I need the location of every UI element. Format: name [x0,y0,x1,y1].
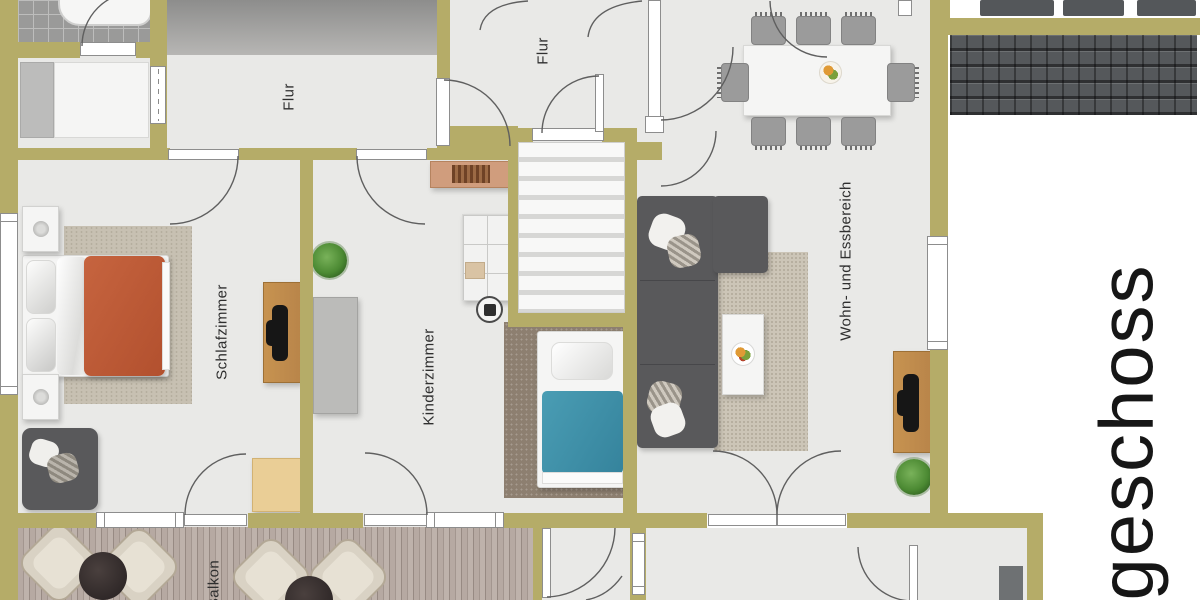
floor-title: geschoss [1084,263,1171,600]
wall-top-right-h [937,18,1200,35]
bed-blanket-orange [84,256,165,376]
cabinet [999,566,1023,600]
fruit-plate [731,342,755,366]
dining-chair [751,16,786,45]
room-label-schlafzimmer: Schlafzimmer [214,284,231,380]
door-bathroom [80,42,136,56]
bed-footboard [162,262,170,370]
kids-bed-footboard [542,472,623,484]
dresser [252,458,301,512]
floor-bottom-rooms [533,528,1043,600]
guest-bed [54,62,149,138]
wall-stair-top-b [602,128,637,142]
door-stairs [532,128,604,141]
wardrobe [313,297,358,414]
dining-chair [841,117,876,146]
plant [896,459,932,495]
dining-chair [796,16,831,45]
dining-table [743,45,891,116]
plant [312,243,347,278]
french-door-right [777,514,846,526]
bed-duvet-fold [57,257,87,375]
dining-chair [841,16,876,45]
shelf [462,214,511,301]
wall-bottom-c [503,513,707,528]
wall-hall-bottom-a [18,148,170,160]
roof-tiles [950,35,1197,115]
shelf-box [465,262,485,279]
dining-chair [887,63,915,102]
window-schlafzimmer-balcony [96,512,184,528]
bathtub [58,0,152,26]
bed-pillow [26,318,56,372]
open-void-area [167,0,437,55]
glass-partition [648,0,661,131]
room-label-wohn-essbereich: Wohn- und Essbereich [838,181,855,340]
window-kinderzimmer-balcony [426,512,504,528]
door-roomA-leaf [542,528,551,598]
sofa-seam [640,364,715,365]
office-chair [903,374,919,432]
wall-bath-bottom-a [18,42,80,58]
robot-vacuum-top [484,304,496,316]
balcony-side-table [79,552,127,600]
wall-bedroom-divider [300,158,313,515]
nightstand [22,374,59,420]
door-stairs-leaf [595,74,604,132]
fruit-bowl [819,61,842,84]
guest-bed-headboard [20,62,54,138]
wall-bottom-right-v [1027,528,1043,600]
dining-chair [796,117,831,146]
door-schlafzimmer-balcony [184,514,247,526]
room-label-flur-center: Flur [535,37,552,64]
door-roomB-leaf [909,545,918,600]
sofa-seam [640,280,715,281]
office-chair [272,305,288,361]
wall-stair-bottom [508,313,637,327]
roof-window [1137,0,1196,16]
room-label-balkon: Balkon [206,560,223,600]
wall-roomA-left [533,528,542,600]
wall-top-right-v [937,0,950,18]
wall-stair-top-a [508,128,533,142]
staircase [518,142,625,313]
floor-plan: Flur Flur Schlafzimmer Kinderzimmer Wohn… [0,0,1200,600]
window-dining-top [898,0,912,16]
window-hall-dashed [150,66,166,124]
wall-hall-bottom-b [239,148,357,160]
bed-pillow [26,260,56,314]
room-label-kinderzimmer: Kinderzimmer [421,328,438,425]
roof-window [980,0,1054,16]
dining-chair [751,117,786,146]
kids-bed-pillow [551,342,613,380]
glass-partition-handle [645,116,664,133]
window-roomAB [632,533,645,595]
door-hall-connector [436,78,450,146]
sideboard-slats [452,165,490,183]
wall-kinder-living-divider [623,327,637,517]
window-left-wall [0,213,18,395]
kids-bed-blanket [542,391,623,474]
nightstand [22,206,59,252]
door-kinderzimmer-balcony [364,514,428,526]
wall-stair-left [508,128,518,327]
room-label-flur-left: Flur [281,83,298,110]
wall-stub-hall [637,142,662,160]
wall-bottom-b [248,513,363,528]
wall-stair-right [625,128,637,327]
roof-window [1063,0,1124,16]
window-living-right [927,236,948,350]
french-door-left [708,514,777,526]
door-hall-kinderzimmer [356,149,427,160]
door-hall-schlafzimmer [168,149,239,160]
wall-bottom-a [18,513,98,528]
sofa-chaise [713,196,768,273]
dining-chair [721,63,749,102]
